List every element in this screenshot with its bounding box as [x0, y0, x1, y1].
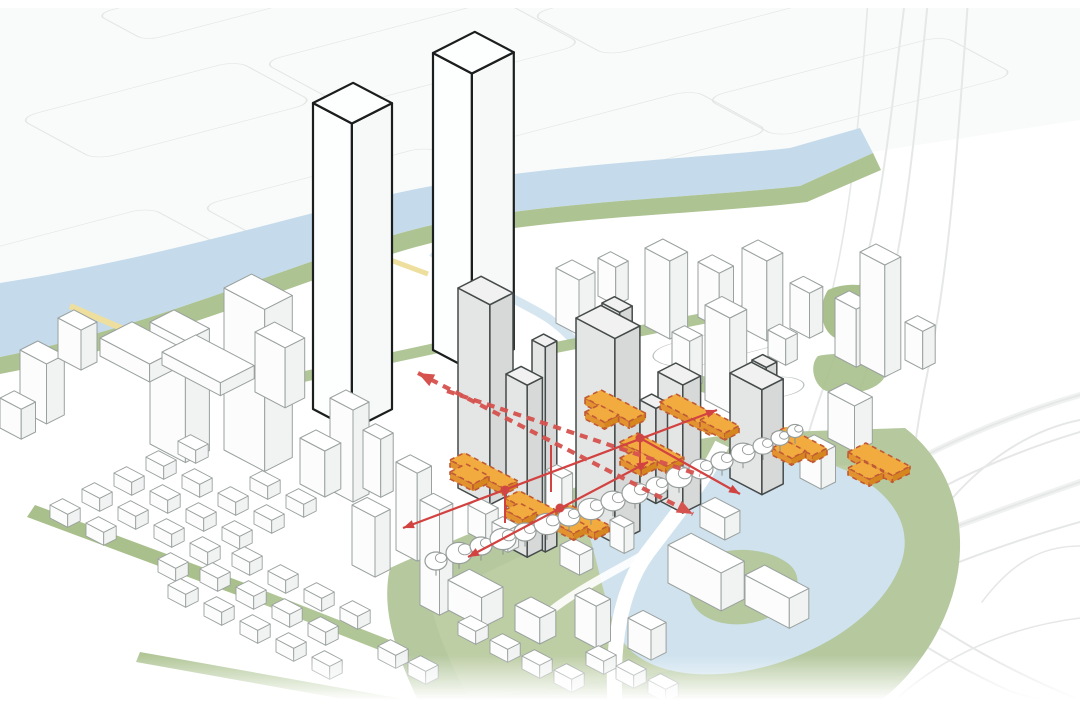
axonometric-diagram-canvas — [0, 0, 1080, 715]
diagram-svg — [0, 0, 1080, 715]
top-margin — [0, 0, 1080, 8]
bottom-fade — [0, 655, 1080, 700]
bottom-margin — [0, 700, 1080, 715]
